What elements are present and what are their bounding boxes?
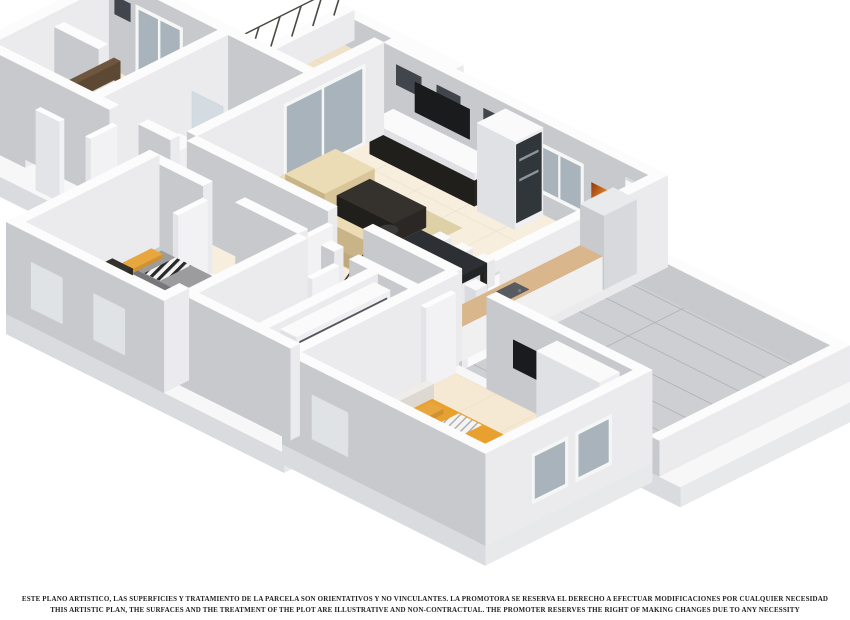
- face-left: [36, 110, 59, 202]
- face-right: [290, 344, 299, 441]
- window-mullion: [559, 156, 561, 199]
- face-left: [421, 306, 426, 388]
- faucet: [518, 289, 521, 292]
- door-leaf-entry: [36, 107, 64, 201]
- door-leaf-master: [421, 291, 455, 388]
- face-right: [485, 449, 494, 546]
- scene: [0, 0, 850, 566]
- face-right: [59, 119, 64, 201]
- face-right: [164, 296, 173, 393]
- floor-plan-page: ESTE PLANO ARTISTICO, LAS SUPERFICIES Y …: [0, 0, 850, 620]
- face-right: [426, 293, 456, 388]
- disclaimer-line-en: THIS ARTISTIC PLAN, THE SURFACES AND THE…: [0, 605, 850, 616]
- disclaimer-line-es: ESTE PLANO ARTISTICO, LAS SUPERFICIES Y …: [0, 594, 850, 605]
- disclaimer: ESTE PLANO ARTISTICO, LAS SUPERFICIES Y …: [0, 594, 850, 616]
- floor-plan-render: [0, 0, 850, 620]
- bookcase-front: [516, 132, 541, 223]
